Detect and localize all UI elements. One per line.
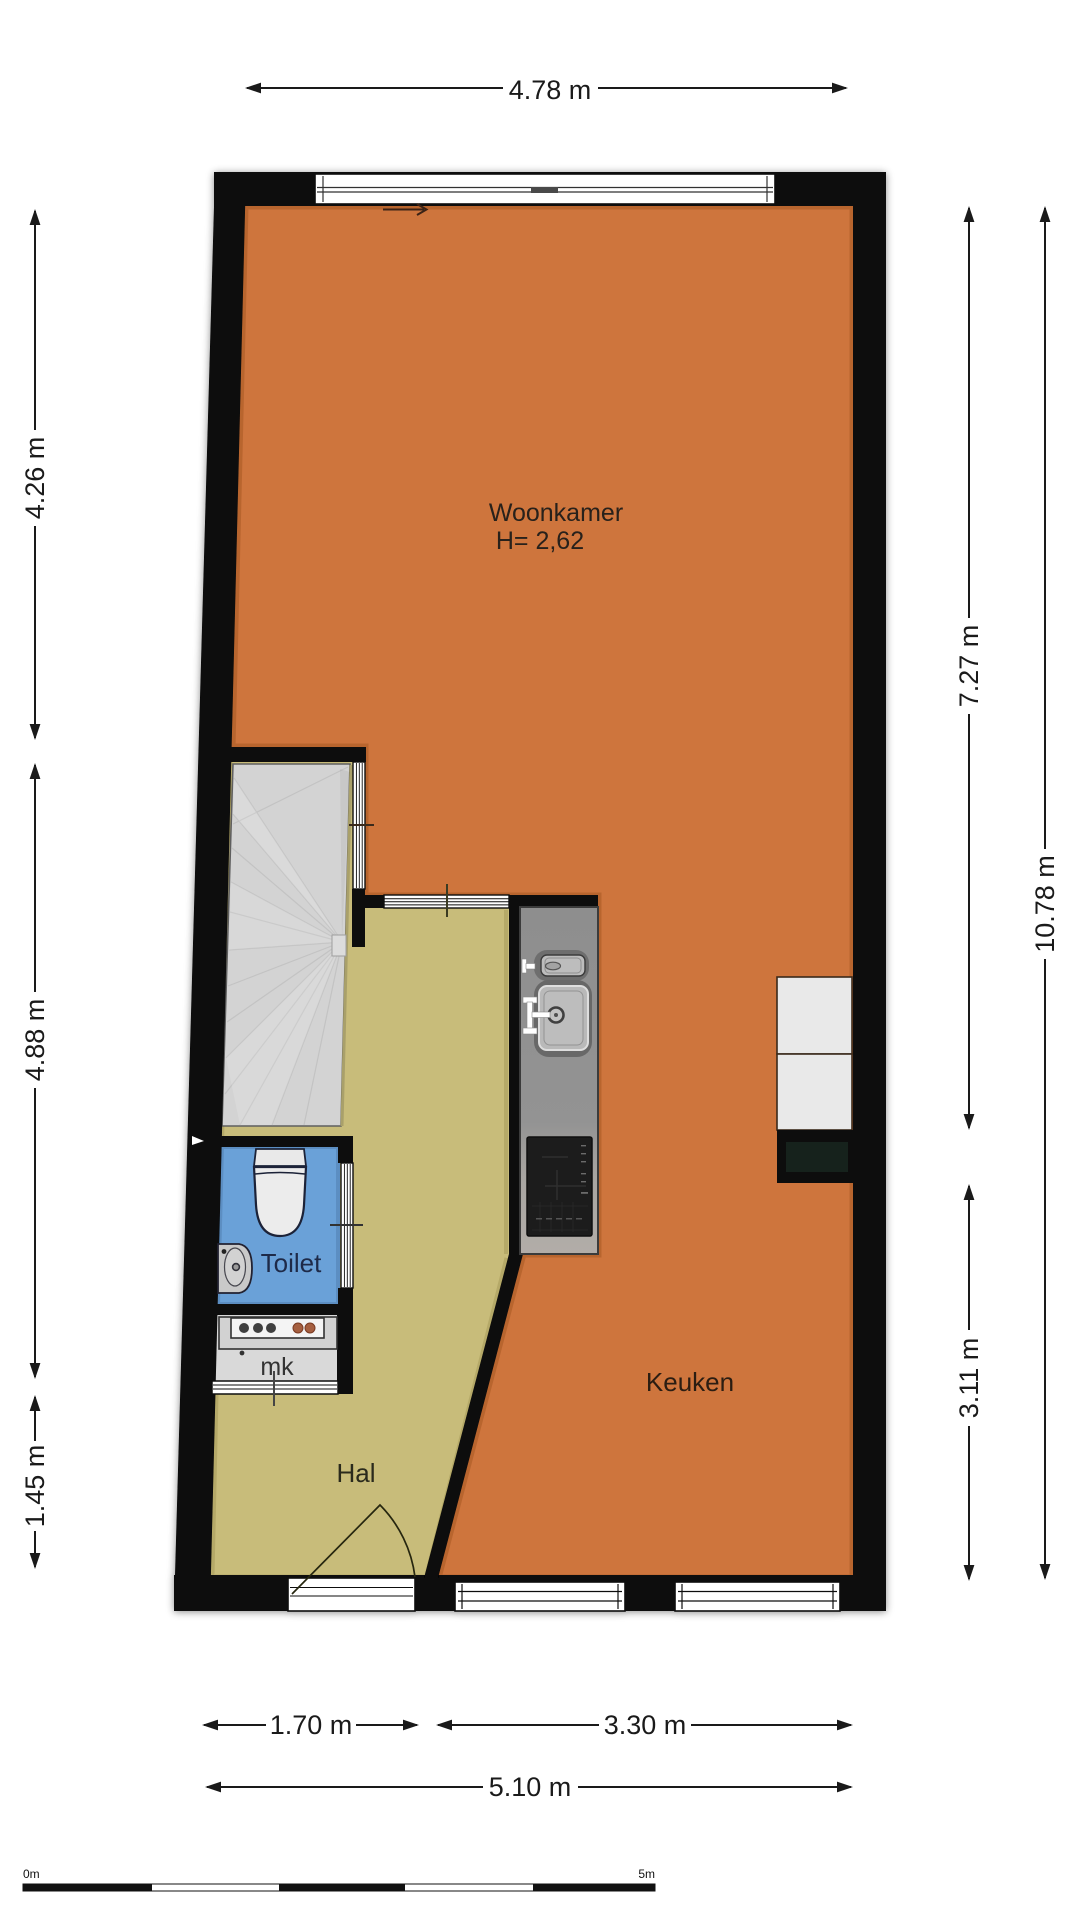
svg-text:Toilet: Toilet bbox=[261, 1248, 322, 1278]
svg-text:1.45 m: 1.45 m bbox=[20, 1445, 50, 1528]
svg-text:4.88 m: 4.88 m bbox=[20, 999, 50, 1082]
svg-text:3.30 m: 3.30 m bbox=[604, 1710, 687, 1740]
svg-text:3.11 m: 3.11 m bbox=[954, 1338, 984, 1419]
svg-text:4.78 m: 4.78 m bbox=[509, 75, 592, 105]
svg-text:0m: 0m bbox=[23, 1867, 40, 1881]
svg-text:Keuken: Keuken bbox=[646, 1367, 734, 1397]
svg-text:H= 2,62: H= 2,62 bbox=[496, 527, 584, 555]
svg-text:10.78 m: 10.78 m bbox=[1030, 855, 1060, 953]
svg-text:Woonkamer: Woonkamer bbox=[489, 499, 623, 527]
svg-text:1.70 m: 1.70 m bbox=[270, 1710, 353, 1740]
svg-text:4.26 m: 4.26 m bbox=[20, 437, 50, 520]
svg-text:Hal: Hal bbox=[336, 1458, 375, 1488]
svg-text:mk: mk bbox=[260, 1353, 294, 1381]
svg-text:5.10 m: 5.10 m bbox=[489, 1772, 572, 1802]
svg-text:5m: 5m bbox=[638, 1867, 655, 1881]
svg-text:7.27 m: 7.27 m bbox=[954, 625, 984, 708]
